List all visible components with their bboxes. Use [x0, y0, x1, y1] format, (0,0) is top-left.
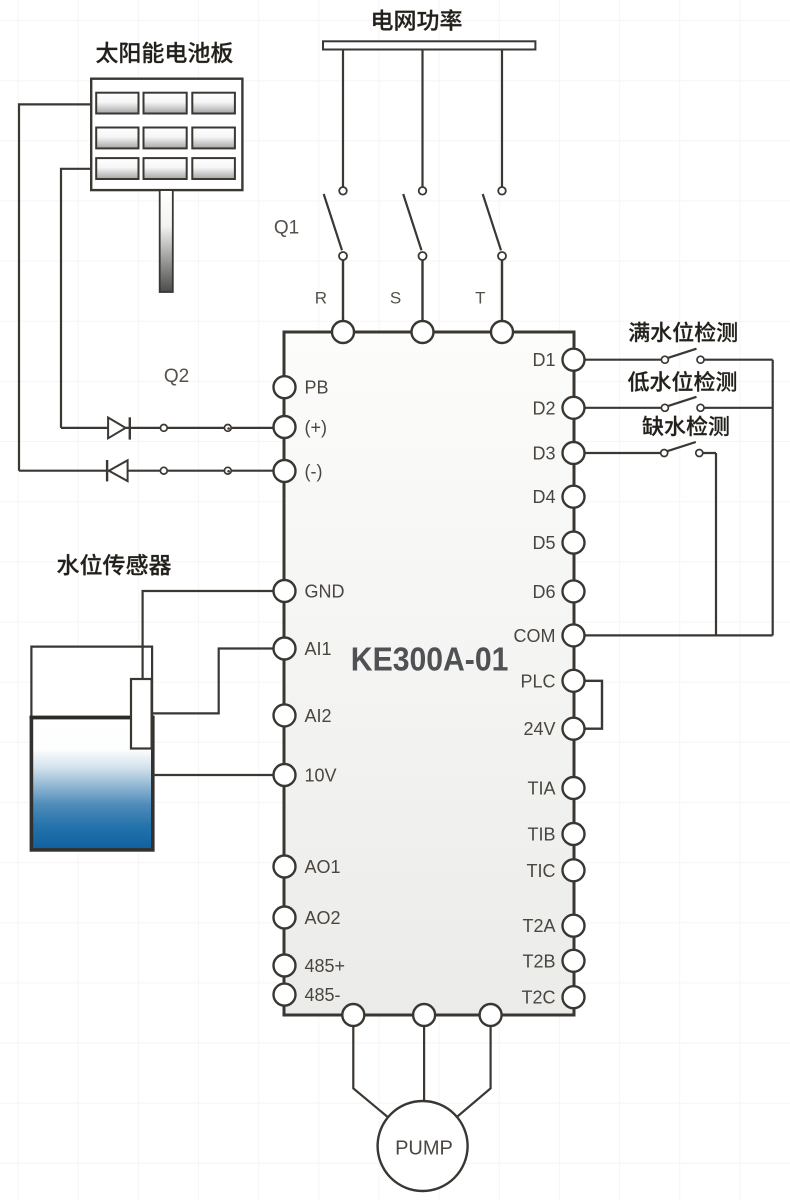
svg-text:D6: D6 [532, 582, 555, 602]
svg-text:(+): (+) [305, 418, 328, 438]
svg-text:AI2: AI2 [305, 706, 332, 726]
svg-text:KE300A-01: KE300A-01 [351, 641, 509, 678]
svg-text:AI1: AI1 [305, 639, 332, 659]
svg-text:S: S [390, 288, 401, 307]
svg-text:T2A: T2A [522, 916, 555, 936]
svg-text:485-: 485- [305, 985, 341, 1005]
svg-text:485+: 485+ [305, 956, 346, 976]
svg-text:TIC: TIC [527, 861, 556, 881]
svg-text:T: T [475, 288, 485, 307]
svg-text:Q2: Q2 [164, 366, 189, 387]
svg-text:AO1: AO1 [305, 857, 341, 877]
svg-text:(-): (-) [305, 462, 323, 482]
svg-text:D3: D3 [532, 444, 555, 464]
svg-text:Q1: Q1 [274, 218, 299, 239]
svg-text:GND: GND [305, 582, 345, 602]
svg-text:24V: 24V [523, 719, 555, 739]
svg-text:D4: D4 [532, 487, 555, 507]
svg-text:PLC: PLC [520, 671, 555, 691]
svg-text:D5: D5 [532, 533, 555, 553]
svg-text:T2C: T2C [521, 988, 555, 1008]
svg-text:TIA: TIA [527, 779, 555, 799]
svg-text:D1: D1 [532, 350, 555, 370]
svg-text:R: R [315, 288, 327, 307]
svg-text:PUMP: PUMP [395, 1138, 453, 1160]
svg-text:T2B: T2B [522, 951, 555, 971]
svg-text:TIB: TIB [527, 825, 555, 845]
svg-text:10V: 10V [305, 766, 337, 786]
svg-text:PB: PB [305, 378, 329, 398]
svg-text:COM: COM [514, 626, 556, 646]
svg-text:AO2: AO2 [305, 908, 341, 928]
svg-text:D2: D2 [532, 398, 555, 418]
